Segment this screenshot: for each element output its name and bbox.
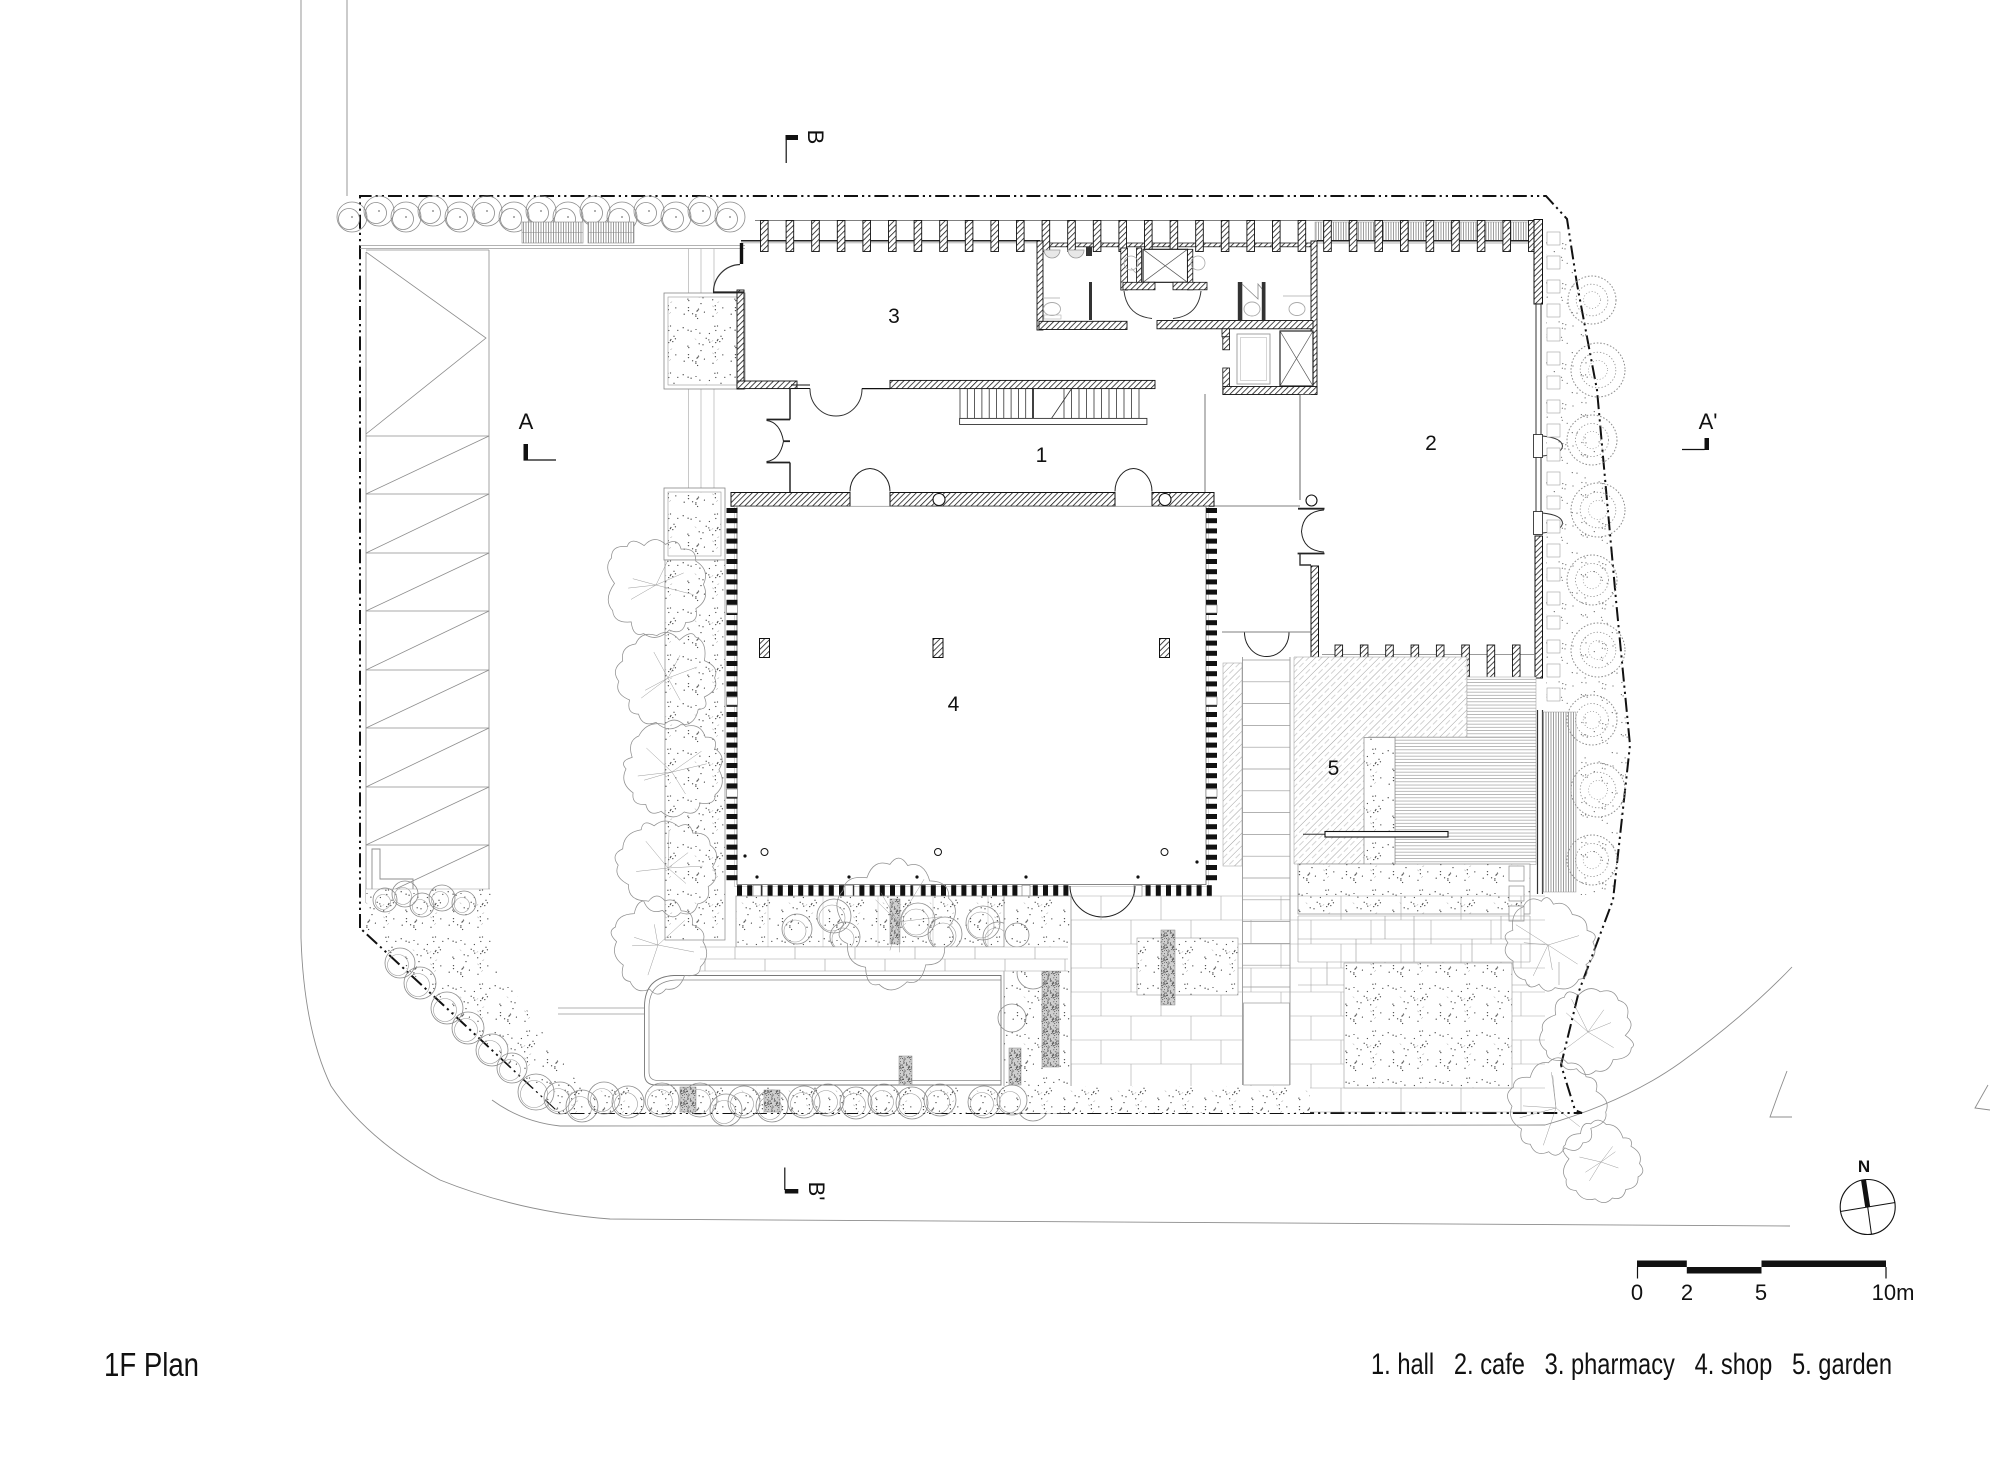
svg-text:2: 2 <box>1425 432 1437 455</box>
svg-text:A': A' <box>1699 409 1718 434</box>
svg-text:B': B' <box>804 1182 829 1201</box>
svg-text:1. hall 2. cafe 3. pharmac: 1. hall 2. cafe 3. pharmacy 4. shop 5. g… <box>1371 1348 1892 1381</box>
svg-text:1F Plan: 1F Plan <box>104 1346 199 1383</box>
svg-text:5: 5 <box>1328 757 1340 780</box>
svg-text:2: 2 <box>1681 1280 1693 1305</box>
svg-text:A: A <box>519 409 534 434</box>
svg-text:0: 0 <box>1631 1280 1643 1305</box>
svg-text:3: 3 <box>888 305 900 328</box>
svg-text:N: N <box>1858 1157 1870 1176</box>
svg-text:5: 5 <box>1755 1280 1767 1305</box>
svg-text:1: 1 <box>1036 444 1048 467</box>
svg-text:10m: 10m <box>1872 1280 1915 1305</box>
svg-text:4: 4 <box>948 693 960 716</box>
svg-text:B: B <box>803 130 828 145</box>
